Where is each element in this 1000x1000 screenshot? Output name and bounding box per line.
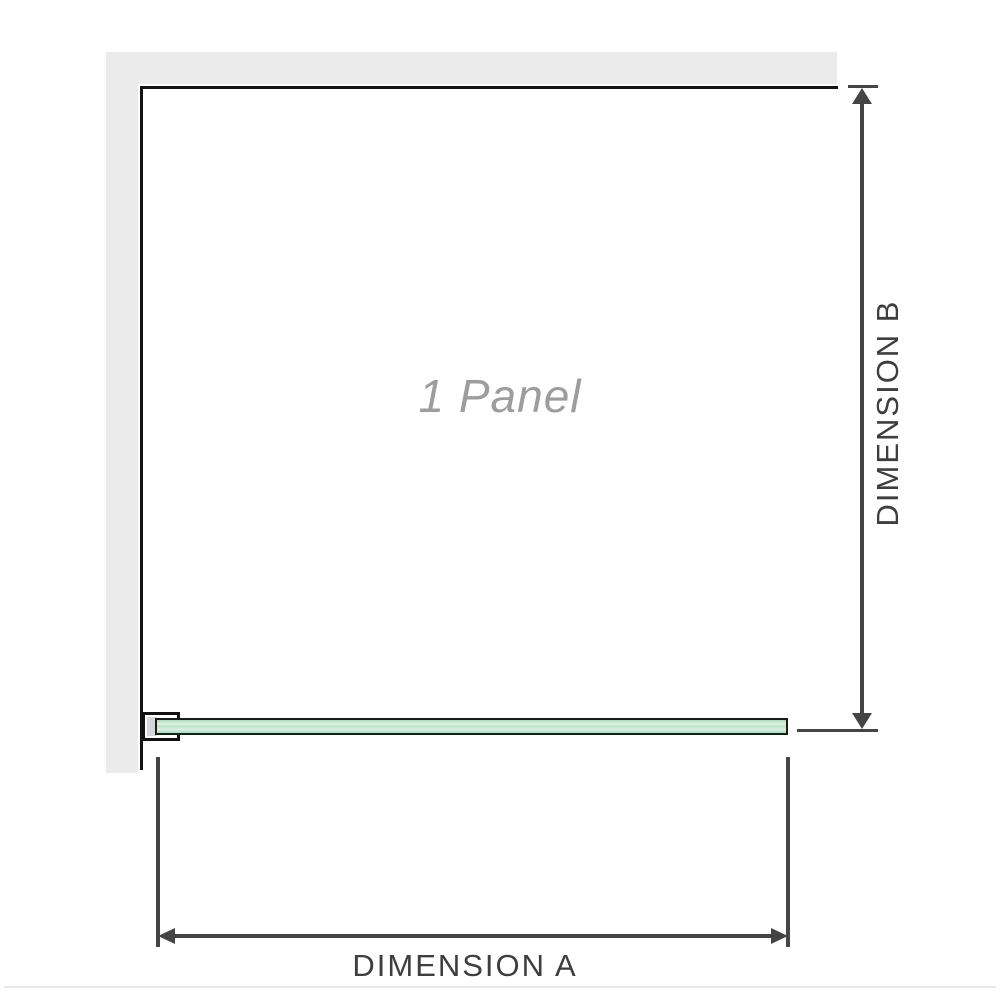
wall-left (106, 52, 138, 773)
panel-dimension-diagram: DIMENSION B DIMENSION A 1 Panel (0, 0, 1000, 1000)
dimension-a-arrow-right-icon (771, 928, 788, 944)
glass-panel (155, 718, 788, 735)
frame-top-line (140, 86, 838, 89)
frame-left-line (140, 86, 143, 770)
dimension-b-arrow-down-icon (852, 713, 872, 729)
dimension-b-bottom-tick (797, 729, 878, 732)
panel-count-label: 1 Panel (418, 369, 581, 423)
image-bottom-hairline (4, 986, 996, 988)
dimension-a-label: DIMENSION A (352, 948, 577, 984)
wall-top (106, 52, 837, 84)
dimension-a-left-extension-line (156, 757, 160, 947)
dimension-a-right-extension-line (786, 757, 790, 947)
dimension-b-label: DIMENSION B (870, 300, 906, 527)
dimension-b-line (860, 100, 864, 718)
dimension-a-line (172, 934, 774, 938)
